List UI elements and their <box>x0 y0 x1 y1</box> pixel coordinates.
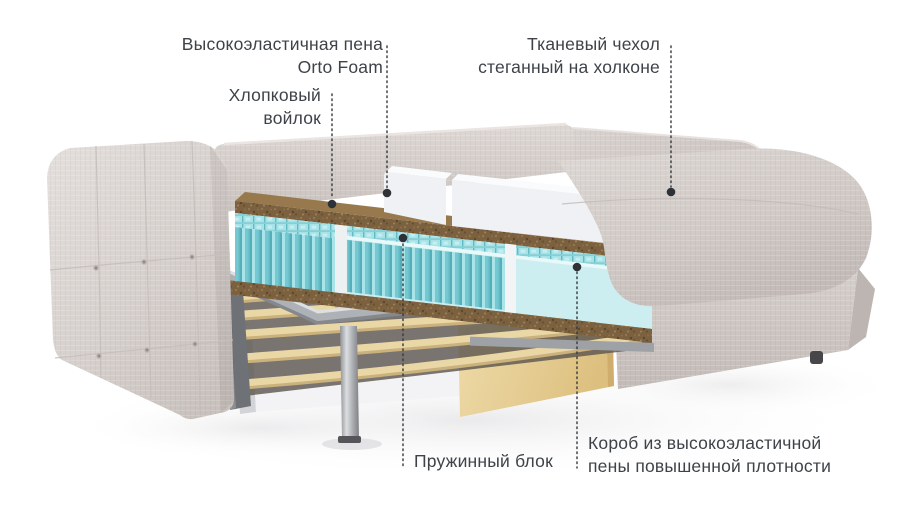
sofa-foot <box>810 351 823 364</box>
callout-orto-foam: Высокоэластичная пена Orto Foam <box>182 33 383 78</box>
callout-spring-block-line1: Пружинный блок <box>414 450 553 473</box>
sofa-cutaway-page: Высокоэластичная пена Orto Foam Хлопковы… <box>0 0 910 512</box>
callout-cotton-felt-line1: Хлопковый <box>229 84 321 107</box>
callout-cotton-felt-line2: войлок <box>229 107 321 130</box>
frame-leg-foot <box>338 436 361 443</box>
leader-dot-orto-foam <box>383 189 392 198</box>
callout-foam-box-line1: Короб из высокоэластичной <box>588 432 831 455</box>
callout-fabric-cover: Тканевый чехол стеганный на холконе <box>478 33 660 78</box>
armrest <box>47 141 235 419</box>
spring-divider <box>335 225 347 298</box>
frame-leg <box>340 326 359 438</box>
leader-dot-foam-box <box>573 263 582 272</box>
callout-foam-box: Короб из высокоэластичной пены повышенно… <box>588 432 831 477</box>
leader-dot-spring-block <box>399 234 408 243</box>
callout-orto-foam-line1: Высокоэластичная пена <box>182 33 383 56</box>
callout-foam-box-line2: пены повышенной плотности <box>588 455 831 478</box>
leader-dot-fabric-cover <box>667 188 676 197</box>
callout-cotton-felt: Хлопковый войлок <box>229 84 321 129</box>
callout-fabric-cover-line1: Тканевый чехол <box>478 33 660 56</box>
callout-fabric-cover-line2: стеганный на холконе <box>478 56 660 79</box>
callout-orto-foam-line2: Orto Foam <box>182 56 383 79</box>
foam-box-edge <box>505 244 516 317</box>
callout-spring-block: Пружинный блок <box>414 450 553 473</box>
leader-dot-cotton-felt <box>328 200 337 209</box>
